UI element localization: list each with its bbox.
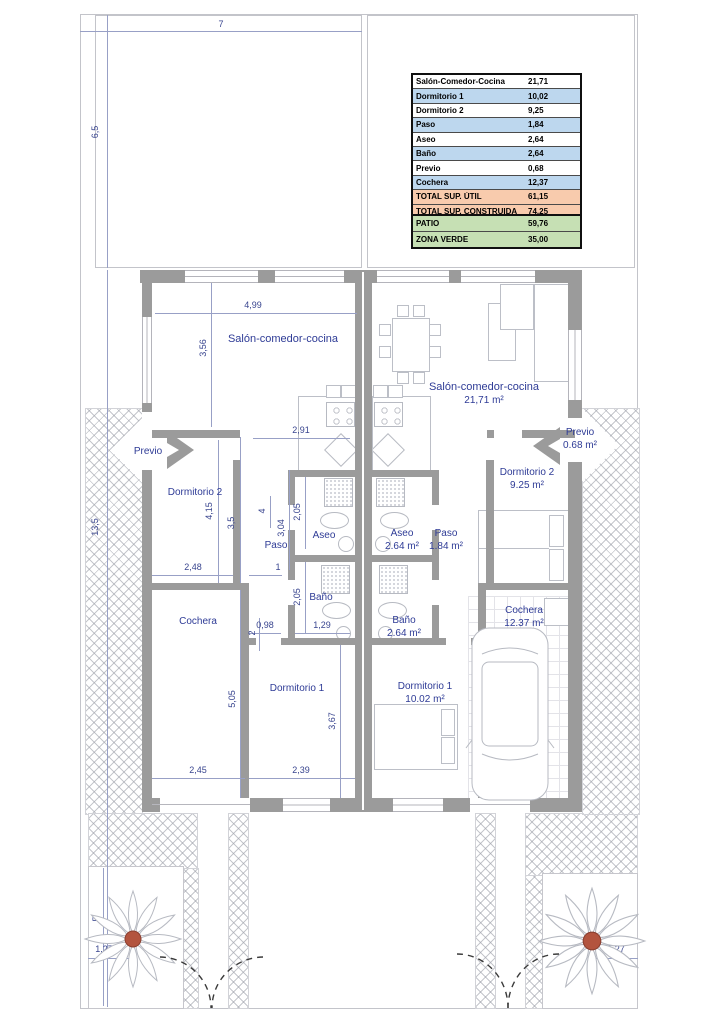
chair xyxy=(429,346,441,358)
room-label-bano-right: Baño2.64 m² xyxy=(374,615,434,640)
party-wall-joint xyxy=(362,272,364,810)
patio-outline xyxy=(95,15,362,268)
wall-segment xyxy=(288,470,355,477)
wall-segment xyxy=(486,583,575,590)
dimension-line xyxy=(88,958,133,959)
window xyxy=(275,270,344,283)
toilet xyxy=(322,602,351,619)
room-label-cochera-right: Cochera12.37 m² xyxy=(484,605,564,630)
dimension-line xyxy=(152,575,233,576)
dim-label-dorm2-height: 4,15 xyxy=(204,496,214,526)
dim-label-dorm2-width: 2,48 xyxy=(178,562,208,572)
table-row: Baño2,64 xyxy=(413,146,580,160)
wall-segment xyxy=(530,798,582,812)
dim-label-cochera-height: 5,05 xyxy=(227,684,237,714)
room-label-aseo-left: Aseo xyxy=(304,530,344,543)
dimension-line xyxy=(253,438,350,439)
stove-left xyxy=(326,402,355,427)
hatch-right-below-building xyxy=(525,813,638,877)
wall-segment xyxy=(471,638,478,645)
window xyxy=(377,270,449,283)
dimension-line xyxy=(107,270,108,1007)
dim-label-kitchen-width: 2,91 xyxy=(286,425,316,435)
dim-label-building-height: 13,5 xyxy=(90,512,100,542)
wall-segment xyxy=(535,270,582,283)
stove-right xyxy=(374,402,403,427)
dimension-line xyxy=(240,437,241,583)
pillow xyxy=(549,515,564,547)
wall-segment xyxy=(142,470,152,812)
room-label-cochera-left: Cochera xyxy=(158,616,238,629)
dim-label-plot-width: 7 xyxy=(206,19,236,29)
dimension-line xyxy=(289,470,290,570)
dim-label-patio-height: 6,5 xyxy=(90,117,100,147)
room-label-dorm1-right: Dormitorio 110.02 m² xyxy=(385,681,465,706)
table-row: Cochera12,37 xyxy=(413,175,580,189)
dim-label-mid-height: 3,5 xyxy=(226,508,236,538)
wall-segment xyxy=(152,430,240,438)
toilet xyxy=(320,512,349,529)
wall-segment xyxy=(449,270,461,283)
chair xyxy=(397,372,409,384)
room-label-dorm2-left: Dormitorio 2 xyxy=(155,487,235,500)
dimension-line xyxy=(107,15,108,268)
site-floor-plan: 7 6,5 13,5 4,99 3,56 2,91 4,15 3,5 4 3,0… xyxy=(0,0,723,1024)
chair xyxy=(429,324,441,336)
dim-label-paso-height: 3,04 xyxy=(276,513,286,543)
hatch-left-walk-band xyxy=(228,813,249,1009)
room-label-previo-right: Previo0.68 m² xyxy=(550,427,610,452)
dimension-line xyxy=(240,590,241,798)
wall-segment xyxy=(258,270,275,283)
hatch-left-below-building xyxy=(88,813,198,870)
dim-label-dorm1-width: 2,39 xyxy=(286,765,316,775)
window xyxy=(142,317,152,403)
dim-label-garden-right: 1,27 xyxy=(601,944,631,954)
shower xyxy=(379,565,408,594)
shower xyxy=(324,478,353,507)
dimension-line xyxy=(218,440,219,583)
dimension-line xyxy=(211,283,212,427)
wall-segment xyxy=(568,462,582,812)
wall-segment xyxy=(372,470,439,477)
dimension-line xyxy=(249,575,282,576)
pillow xyxy=(549,549,564,581)
dim-label-salon-height: 3,56 xyxy=(198,333,208,363)
room-label-previo-left: Previo xyxy=(118,446,178,459)
room-label-salon-left: Salón-comedor-cocina xyxy=(213,333,353,347)
table-row-zona-verde: ZONA VERDE35,00 xyxy=(413,231,580,247)
window xyxy=(568,330,582,400)
appliance xyxy=(388,385,403,398)
dim-label-cochera-width: 2,45 xyxy=(183,765,213,775)
wall-segment xyxy=(142,403,152,412)
pillow xyxy=(441,737,455,764)
dimension-line xyxy=(155,313,357,314)
chair xyxy=(379,346,391,358)
wall-segment xyxy=(142,283,152,317)
table-row: Aseo2,64 xyxy=(413,132,580,146)
dimension-line xyxy=(249,778,355,779)
wall-segment xyxy=(281,638,355,645)
chair xyxy=(379,324,391,336)
room-label-paso-right: Paso1.84 m² xyxy=(416,528,476,553)
wall-segment xyxy=(443,798,470,812)
table-row: Paso1,84 xyxy=(413,117,580,131)
dim-label-dorm1-height: 3,67 xyxy=(327,706,337,736)
dim-label-paso-width: 1 xyxy=(263,562,293,572)
appliance xyxy=(341,385,356,398)
table-row: Dormitorio 110,02 xyxy=(413,88,580,102)
room-label-bano-left: Baño xyxy=(301,592,341,605)
room-label-dorm2-right: Dormitorio 29.25 m² xyxy=(487,467,567,492)
dimension-line xyxy=(593,958,638,959)
wall-segment xyxy=(250,798,283,812)
dim-label-garden-left: 1,27 xyxy=(89,944,119,954)
table-row-total-util: TOTAL SUP. ÚTIL61,15 xyxy=(413,189,580,203)
wall-segment xyxy=(568,400,582,418)
table-row: Previo0,68 xyxy=(413,160,580,174)
area-summary-table: Salón-Comedor-Cocina21,71 Dormitorio 110… xyxy=(411,73,582,220)
garden-right xyxy=(542,873,638,1009)
table-row: Dormitorio 29,25 xyxy=(413,103,580,117)
outdoor-areas-table: PATIO59,76 ZONA VERDE35,00 xyxy=(411,214,582,249)
table-row: Salón-Comedor-Cocina21,71 xyxy=(413,75,580,88)
dim-label-aseo-height: 2,05 xyxy=(292,497,302,527)
wall-segment xyxy=(241,583,249,798)
room-label-salon-right: Salón-comedor-cocina21,71 m² xyxy=(414,381,554,407)
dimension-line xyxy=(80,31,362,32)
appliance xyxy=(373,385,388,398)
wall-segment xyxy=(142,798,160,812)
wall-segment xyxy=(372,555,439,562)
dim-label-129: 1,29 xyxy=(307,620,337,630)
dimension-line xyxy=(295,633,350,634)
sofa-chaise xyxy=(500,284,534,330)
shower xyxy=(321,565,350,594)
chair xyxy=(413,305,425,317)
dimension-line xyxy=(270,496,271,528)
appliance xyxy=(326,385,341,398)
wall-segment xyxy=(288,555,355,562)
pillow xyxy=(441,709,455,736)
window xyxy=(185,270,258,283)
room-label-dorm1-left: Dormitorio 1 xyxy=(257,683,337,696)
dim-label-two: 2 xyxy=(247,618,257,648)
hatch-right-walk-band xyxy=(475,813,496,1009)
dimension-line xyxy=(340,645,341,798)
dimension-line xyxy=(103,868,104,1006)
room-label-paso-left: Paso xyxy=(256,540,296,553)
dim-label-garden-height: 5 xyxy=(91,904,101,934)
window xyxy=(393,798,443,812)
table-row-patio: PATIO59,76 xyxy=(413,216,580,231)
sofa xyxy=(534,284,570,382)
garage-door-left xyxy=(152,804,250,805)
shower xyxy=(376,478,405,507)
window xyxy=(283,798,330,812)
toilet xyxy=(380,512,409,529)
wall-segment xyxy=(487,430,494,438)
window xyxy=(461,270,535,283)
dim-label-four: 4 xyxy=(257,496,267,526)
chair xyxy=(397,305,409,317)
wall-segment xyxy=(140,270,185,283)
wall-segment xyxy=(152,583,241,590)
hatch-left-garden-band xyxy=(182,868,199,1009)
wall-segment xyxy=(568,283,582,330)
garage-door-right xyxy=(470,804,530,805)
dining-table xyxy=(392,318,430,372)
dimension-line xyxy=(152,778,245,779)
dim-label-salon-width: 4,99 xyxy=(238,300,268,310)
